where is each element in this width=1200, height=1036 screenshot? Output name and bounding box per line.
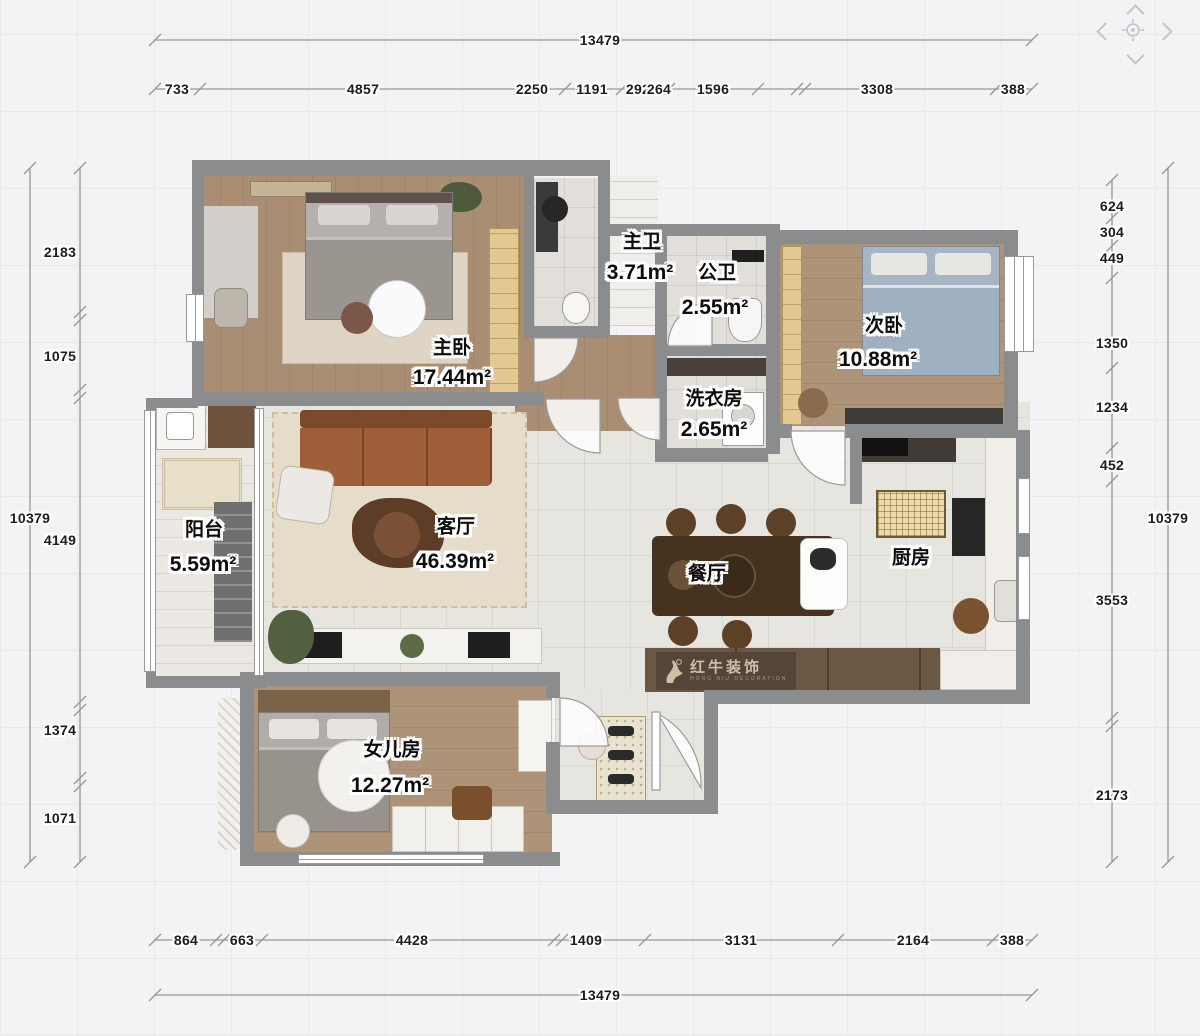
dim-right-seg: 1350 — [1096, 335, 1128, 351]
pan-center-button[interactable] — [1122, 19, 1144, 41]
dim-bottom-seg: 1409 — [570, 932, 602, 948]
door-arc — [546, 399, 600, 453]
room-area-master-bath: 3.71m² — [607, 261, 674, 285]
floorplan-canvas: 红牛装饰 HONG NIU DECORATION — [0, 0, 1200, 1036]
pan-left-button[interactable] — [1090, 20, 1112, 42]
dim-bottom-seg: 388 — [1000, 932, 1024, 948]
dim-top-seg: 1596 — [697, 81, 729, 97]
room-area-second-bedroom: 10.88m² — [839, 348, 917, 372]
dim-right-seg: 2173 — [1096, 787, 1128, 803]
room-area-laundry: 2.65m² — [681, 418, 748, 442]
dim-right-seg: 452 — [1100, 457, 1124, 473]
door-arc — [560, 698, 608, 746]
door-arc — [791, 431, 845, 485]
room-label-master-bath: 主卫 — [623, 227, 661, 254]
dim-right-seg: 3553 — [1096, 592, 1128, 608]
dim-right-seg: 624 — [1100, 198, 1124, 214]
dim-bottom-seg: 864 — [174, 932, 198, 948]
dim-left-seg: 1071 — [44, 810, 76, 826]
dim-left-seg: 1374 — [44, 722, 76, 738]
room-area-master-bedroom: 17.44m² — [413, 366, 491, 390]
room-label-balcony: 阳台 — [185, 515, 223, 542]
pan-control — [1088, 0, 1188, 80]
room-label-dining-room: 餐厅 — [688, 559, 726, 586]
door-arc — [658, 714, 701, 788]
pan-right-button[interactable] — [1156, 20, 1178, 42]
dim-left-seg: 1075 — [44, 348, 76, 364]
room-label-second-bedroom: 次卧 — [865, 311, 903, 338]
dim-left-total: 10379 — [10, 510, 50, 526]
room-area-balcony: 5.59m² — [170, 553, 237, 577]
room-label-master-bedroom: 主卧 — [433, 333, 471, 360]
door-arc — [618, 398, 660, 440]
dim-right-seg: 1234 — [1096, 399, 1128, 415]
room-label-guest-bath: 公卫 — [698, 258, 736, 285]
dim-left-seg: 4149 — [44, 532, 76, 548]
dim-top-seg: 3308 — [861, 81, 893, 97]
dim-top-seg: 733 — [165, 81, 189, 97]
room-area-guest-bath: 2.55m² — [682, 296, 749, 320]
dim-top-seg: 264 — [647, 81, 671, 97]
room-area-living-room: 46.39m² — [416, 550, 494, 574]
pan-down-button[interactable] — [1124, 48, 1146, 70]
dim-left-seg: 2183 — [44, 244, 76, 260]
dim-bottom-seg: 2164 — [897, 932, 929, 948]
room-label-kitchen: 厨房 — [892, 543, 930, 570]
dim-top-seg: 4857 — [347, 81, 379, 97]
dim-top-seg: 2250 — [516, 81, 548, 97]
chevron-left-icon — [1096, 22, 1114, 40]
dim-top-seg: 1191 — [576, 81, 608, 97]
chevron-down-icon — [1126, 46, 1144, 64]
room-label-daughter-room: 女儿房 — [363, 735, 420, 762]
chevron-right-icon — [1154, 22, 1172, 40]
crosshair-target-icon — [1122, 17, 1144, 43]
room-label-living-room: 客厅 — [437, 512, 475, 539]
room-area-daughter-room: 12.27m² — [351, 774, 429, 798]
dim-right-total: 10379 — [1148, 510, 1188, 526]
door-arcs-layer — [0, 0, 1200, 1036]
dim-right-seg: 304 — [1100, 224, 1124, 240]
dim-bottom-seg: 3131 — [725, 932, 757, 948]
door-leaf — [652, 712, 660, 790]
dim-right-seg: 449 — [1100, 250, 1124, 266]
door-arc — [534, 338, 578, 382]
dim-top-total: 13479 — [580, 32, 620, 48]
room-label-laundry: 洗衣房 — [685, 384, 742, 411]
dim-bottom-seg: 663 — [230, 932, 254, 948]
dim-bottom-seg: 4428 — [396, 932, 428, 948]
dim-top-seg: 388 — [1001, 81, 1025, 97]
dim-bottom-total: 13479 — [580, 987, 620, 1003]
